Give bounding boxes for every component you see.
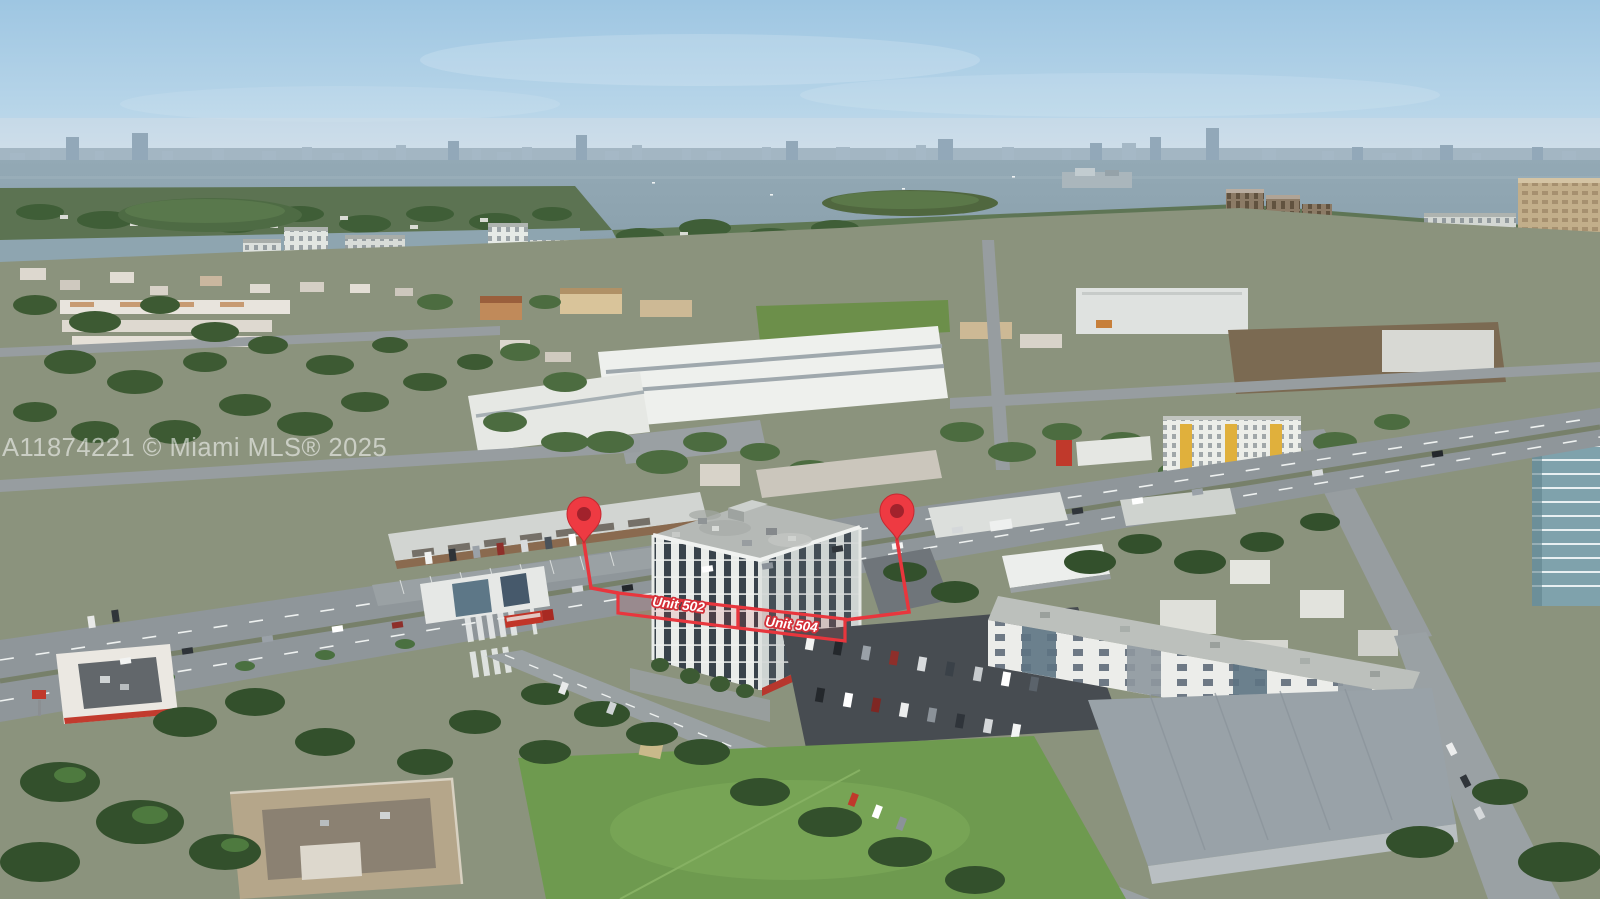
port-docks [1062,172,1132,188]
red-kiosk [1056,440,1072,466]
sky [0,0,1600,165]
mls-watermark: A11874221 © Miami MLS® 2025 [2,434,387,462]
bottom-left-building [230,779,462,899]
aerial-photo: Unit 502 Unit 504 A11874221 © Miami MLS®… [0,0,1600,899]
restaurant-sign [32,690,46,699]
